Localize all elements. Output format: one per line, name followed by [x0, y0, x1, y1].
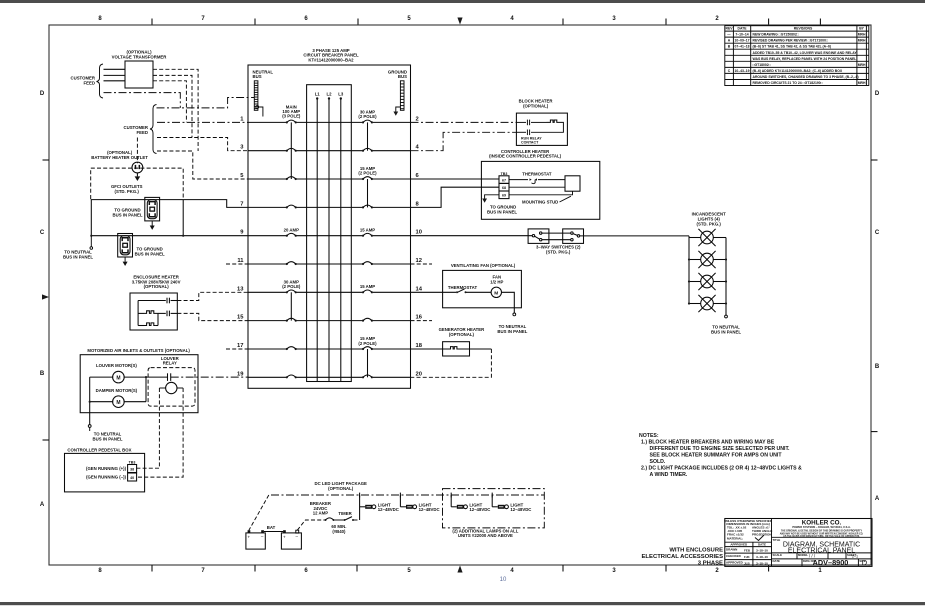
svg-text:KT#11412000000–BA2: KT#11412000000–BA2 — [308, 57, 354, 62]
svg-text:1/2 HP: 1/2 HP — [490, 279, 503, 284]
svg-text:(OPTIONAL): (OPTIONAL) — [328, 486, 354, 491]
svg-text:□GT18002□: □GT18002□ — [753, 63, 771, 67]
svg-text:(OPTIONAL): (OPTIONAL) — [144, 284, 170, 289]
svg-text:BY: BY — [859, 27, 864, 31]
svg-text:VENTILATING FAN (OPTIONAL): VENTILATING FAN (OPTIONAL) — [451, 263, 516, 268]
svg-text:7–10–14: 7–10–14 — [735, 33, 748, 37]
svg-text:16: 16 — [416, 315, 423, 321]
svg-text:(B–6) ST TAB 41, SS TAB 42, &: (B–6) ST TAB 41, SS TAB 42, & SS TAB 42L… — [753, 45, 832, 49]
svg-text:PROJECTION: PROJECTION — [752, 533, 772, 537]
svg-text:CHECKED: CHECKED — [726, 554, 742, 558]
svg-text:10–09–17: 10–09–17 — [734, 39, 749, 43]
svg-text:B: B — [40, 371, 45, 377]
svg-text:(STD. PKG.): (STD. PKG.) — [546, 250, 571, 255]
svg-text:10: 10 — [416, 230, 422, 236]
svg-text:20 AMP: 20 AMP — [284, 227, 299, 232]
svg-text:DRAWN: DRAWN — [726, 547, 737, 551]
svg-text:(INSIDE CONTROLLER PEDESTAL): (INSIDE CONTROLLER PEDESTAL) — [489, 154, 562, 159]
svg-text:UNITS #22000 AND ABOVE: UNITS #22000 AND ABOVE — [458, 533, 513, 538]
svg-text:VOLTAGE TRANSFORMER: VOLTAGE TRANSFORMER — [112, 54, 168, 59]
svg-text:M: M — [494, 290, 498, 296]
svg-text:19: 19 — [237, 371, 244, 377]
svg-text:M: M — [116, 400, 120, 406]
svg-text:07–41–18: 07–41–18 — [734, 45, 749, 49]
svg-text:3–18–10: 3–18–10 — [756, 562, 768, 566]
svg-text:DAMPER MOTOR(S): DAMPER MOTOR(S) — [96, 388, 138, 393]
svg-text:FJK: FJK — [744, 555, 751, 559]
svg-text:WITH ENCLOSURE: WITH ENCLOSURE — [669, 548, 723, 554]
svg-text:L3: L3 — [338, 92, 344, 97]
svg-text:APPROVED: APPROVED — [730, 543, 748, 547]
svg-text:(#B40): (#B40) — [332, 529, 346, 534]
svg-text:12–48VDC: 12–48VDC — [419, 507, 440, 512]
svg-text:DWG NO.: DWG NO. — [803, 559, 816, 563]
svg-text:12–48VDC: 12–48VDC — [510, 507, 531, 512]
svg-text:FEED: FEED — [137, 130, 148, 135]
svg-text:40: 40 — [130, 476, 134, 480]
svg-text:AROUND SWITCHES, CHANGED DRAWI: AROUND SWITCHES, CHANGED DRAWING TO 3 PH… — [753, 75, 859, 79]
svg-text:DIFFERENT DUE TO ENGINE SIZE S: DIFFERENT DUE TO ENGINE SIZE SELECTED PE… — [650, 446, 791, 452]
svg-text:B: B — [875, 364, 880, 370]
svg-text:ADV–8900: ADV–8900 — [813, 558, 849, 567]
svg-text:A: A — [875, 496, 880, 502]
svg-text:(B–6) ADDED KT#11412000000–BA2: (B–6) ADDED KT#11412000000–BA2; (C–6) AD… — [753, 69, 843, 73]
svg-text:17: 17 — [237, 343, 243, 349]
svg-text:L2: L2 — [326, 92, 332, 97]
svg-text:38: 38 — [130, 467, 134, 471]
svg-text:AND MAY NOT BE USED WITHOUT OU: AND MAY NOT BE USED WITHOUT OUR WRITTEN … — [780, 532, 864, 535]
svg-text:(2 POLE): (2 POLE) — [282, 284, 301, 289]
svg-text:10: 10 — [500, 577, 507, 583]
svg-text:BATTERY HEATER OUTLET: BATTERY HEATER OUTLET — [91, 155, 148, 160]
svg-text:69: 69 — [502, 194, 506, 198]
svg-text:AS THE BASIS FOR MANUFACTURE,: AS THE BASIS FOR MANUFACTURE, OR THE SAL… — [783, 535, 860, 538]
svg-text:2: 2 — [416, 116, 419, 122]
svg-text:BUS: BUS — [398, 74, 407, 79]
svg-text:20: 20 — [416, 371, 422, 377]
svg-text:LOUVER MOTOR(S): LOUVER MOTOR(S) — [96, 363, 137, 368]
svg-text:12 AMP: 12 AMP — [313, 511, 328, 516]
svg-text:MRH: MRH — [858, 39, 866, 43]
svg-text:DATE: DATE — [738, 27, 748, 31]
svg-text:BUS: BUS — [253, 74, 262, 79]
svg-text:RELAY: RELAY — [163, 361, 177, 366]
svg-text:11: 11 — [237, 258, 244, 264]
svg-text:15 AMP: 15 AMP — [360, 284, 375, 289]
svg-text:BAT: BAT — [267, 525, 276, 530]
svg-text:A WIND TIMER.: A WIND TIMER. — [650, 472, 688, 478]
svg-text:FEB: FEB — [744, 549, 751, 553]
svg-text:12–48VDC: 12–48VDC — [378, 507, 399, 512]
svg-text:3–18–10: 3–18–10 — [756, 549, 768, 553]
svg-text:L1: L1 — [315, 92, 321, 97]
svg-text:BUS IN PANEL: BUS IN PANEL — [497, 329, 527, 334]
svg-text:7: 7 — [240, 201, 243, 207]
svg-text:WAS BUS RELAY, REPLACED PANEL: WAS BUS RELAY, REPLACED PANEL WITH 24 PO… — [753, 57, 857, 61]
svg-text:(GEN RUNNING (+)): (GEN RUNNING (+)) — [86, 466, 127, 471]
svg-text:SCALE: SCALE — [773, 553, 783, 557]
svg-text:JLB: JLB — [744, 562, 751, 566]
svg-text:SIZE: SIZE — [859, 559, 865, 563]
svg-text:(3 POLE): (3 POLE) — [282, 114, 301, 119]
svg-text:13: 13 — [237, 286, 244, 292]
svg-text:MOTORIZED AIR INLETS & OUTLETS: MOTORIZED AIR INLETS & OUTLETS (OPTIONAL… — [87, 348, 190, 353]
svg-text:CONTROLLER PEDESTAL BOX: CONTROLLER PEDESTAL BOX — [67, 447, 131, 452]
svg-text:3–18–10: 3–18–10 — [756, 555, 768, 559]
svg-text:DATE: DATE — [758, 543, 766, 547]
svg-text:MRH: MRH — [858, 63, 866, 67]
svg-text:67: 67 — [502, 178, 506, 182]
svg-text:SEE BLOCK HEATER SUMMARY FOR A: SEE BLOCK HEATER SUMMARY FOR AMPS ON UNI… — [650, 453, 783, 459]
svg-text:TITLE: TITLE — [773, 538, 781, 542]
svg-text:TIMER: TIMER — [338, 511, 352, 516]
svg-text:(STD. PKG.): (STD. PKG.) — [697, 221, 722, 226]
svg-text:APPROVED: APPROVED — [726, 560, 744, 564]
svg-text:SOLD.: SOLD. — [650, 459, 666, 465]
svg-text:DATE: DATE — [773, 559, 781, 563]
svg-text:+: + — [248, 535, 251, 540]
svg-text:C: C — [875, 230, 880, 236]
svg-text:BUS IN PANEL: BUS IN PANEL — [92, 436, 122, 441]
svg-text:CONTACT: CONTACT — [521, 140, 539, 144]
svg-text:THERMOSTAT: THERMOSTAT — [522, 171, 552, 176]
svg-text:TB3: TB3 — [501, 172, 508, 176]
svg-text:REVISIONS: REVISIONS — [794, 27, 813, 31]
svg-text:BUS IN PANEL: BUS IN PANEL — [63, 254, 93, 259]
svg-text:15: 15 — [237, 315, 244, 321]
svg-text:BUS IN PANEL: BUS IN PANEL — [711, 330, 741, 335]
svg-text:C: C — [40, 230, 45, 236]
svg-text:REMOVED CIRCUITS 21 TO 24 □GT: REMOVED CIRCUITS 21 TO 24 □GT182190□ — [753, 81, 823, 85]
svg-text:+: + — [283, 535, 286, 540]
svg-text:(2 POLE): (2 POLE) — [358, 341, 377, 346]
svg-text:BUS IN PANEL: BUS IN PANEL — [487, 209, 517, 214]
svg-text:3 PHASE: 3 PHASE — [698, 561, 723, 567]
svg-text:(GEN RUNNING (–)): (GEN RUNNING (–)) — [86, 475, 126, 480]
svg-text:REV: REV — [726, 27, 734, 31]
svg-text:MODEL: MODEL — [798, 553, 808, 557]
svg-text:MATERIAL:: MATERIAL: — [727, 537, 743, 541]
svg-text:BUS IN PANEL: BUS IN PANEL — [135, 251, 165, 256]
svg-text:(2 POLE): (2 POLE) — [358, 114, 377, 119]
svg-text:18: 18 — [416, 343, 423, 349]
svg-text:15 AMP: 15 AMP — [360, 227, 375, 232]
svg-text:12: 12 — [416, 258, 422, 264]
svg-text:POWER SYSTEMS – KOHLER, WI 530: POWER SYSTEMS – KOHLER, WI 53044, U.S.A. — [792, 525, 851, 529]
svg-text:12–48VDC: 12–48VDC — [469, 507, 490, 512]
svg-text:THE ORIGINAL & DETAIL DESIGN O: THE ORIGINAL & DETAIL DESIGN OF THIS DRA… — [781, 529, 863, 532]
svg-text:BUS IN PANEL: BUS IN PANEL — [112, 212, 142, 217]
svg-text:1.) BLOCK HEATER BREAKERS AND: 1.) BLOCK HEATER BREAKERS AND WIRING MAY… — [641, 440, 775, 446]
svg-text:10–43–19: 10–43–19 — [734, 69, 749, 73]
svg-text:FEED: FEED — [84, 80, 95, 85]
svg-text:68: 68 — [502, 186, 506, 190]
svg-text:ELECTRICAL ACCESSORIES: ELECTRICAL ACCESSORIES — [642, 554, 724, 560]
svg-text:ADDED TB10–55 & TB10–42, LOUVE: ADDED TB10–55 & TB10–42, LOUVER WAS ENGI… — [753, 51, 858, 55]
svg-text:REVISED DRAWING PER REVIEW □GT: REVISED DRAWING PER REVIEW □GT171000□ — [753, 39, 829, 43]
svg-text:MOUNTING STUD: MOUNTING STUD — [522, 199, 558, 204]
svg-text:D: D — [875, 91, 880, 97]
svg-text:NEW DRAWING □GT150802□: NEW DRAWING □GT150802□ — [753, 33, 799, 37]
svg-text:(OPTIONAL): (OPTIONAL) — [523, 104, 549, 109]
svg-text:M: M — [116, 375, 120, 381]
svg-text:MRH: MRH — [858, 81, 866, 85]
svg-text:14: 14 — [416, 286, 423, 292]
svg-text:(OPTIONAL): (OPTIONAL) — [449, 332, 475, 337]
svg-text:NOTES:: NOTES: — [639, 433, 659, 439]
svg-text:(2 POLE): (2 POLE) — [358, 171, 377, 176]
svg-text:A: A — [40, 502, 45, 508]
svg-text:2.) DC LIGHT PACKAGE INCLUDES: 2.) DC LIGHT PACKAGE INCLUDES (2 OR 4) 1… — [641, 466, 802, 472]
svg-text:(STD. PKG.): (STD. PKG.) — [115, 189, 140, 194]
svg-text:MRH: MRH — [858, 33, 866, 37]
svg-text:SHEET: SHEET — [847, 553, 857, 557]
svg-text:D: D — [40, 91, 45, 97]
